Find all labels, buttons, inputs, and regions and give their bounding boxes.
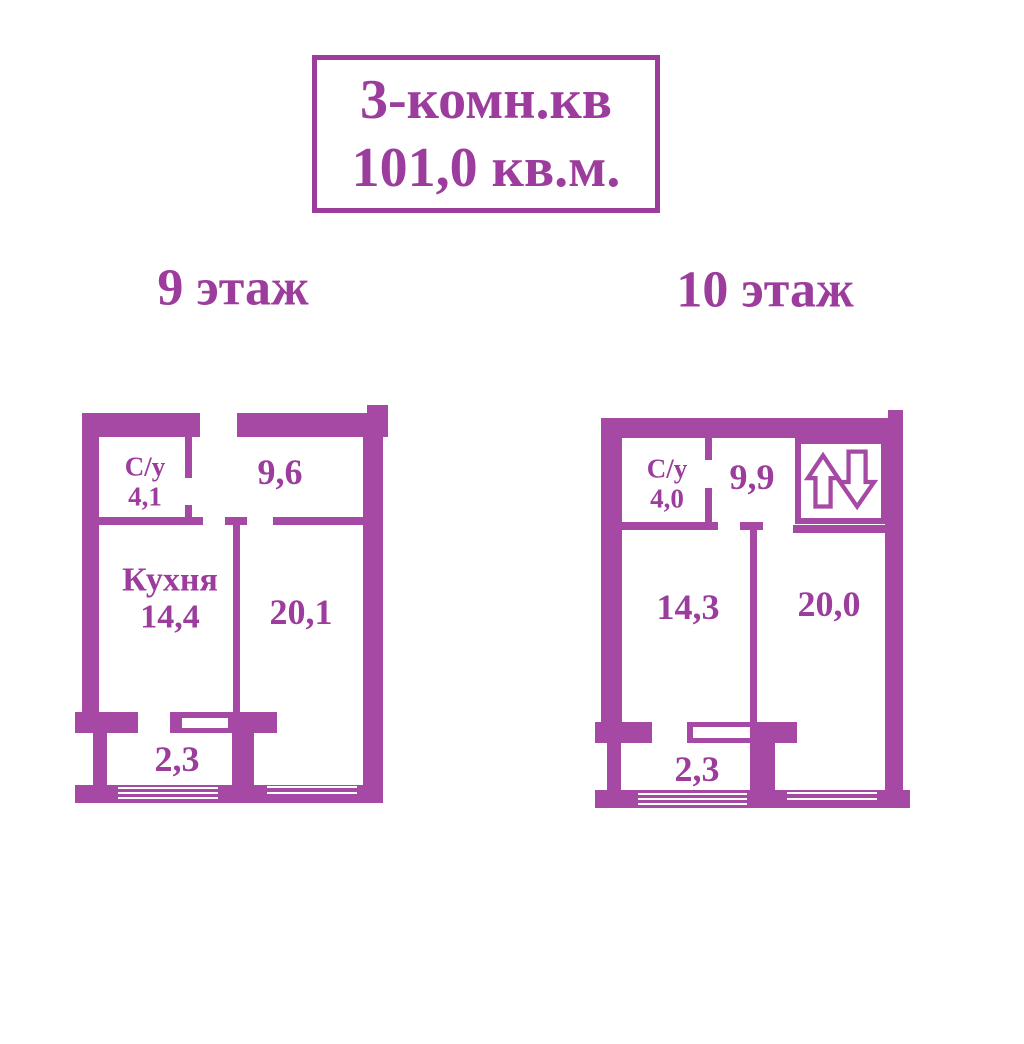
wall-top-right <box>237 413 383 437</box>
arrow-down-icon <box>840 452 874 507</box>
right-room-area: 20,0 <box>798 586 861 624</box>
balcony-area: 2,3 <box>155 741 200 779</box>
bathroom-name: С/у <box>125 452 166 482</box>
wall-mid-stub <box>740 522 763 530</box>
bathroom-label: С/у 4,1 <box>125 452 166 511</box>
wall-bathroom-right-upper <box>705 438 712 460</box>
stairwell-box <box>795 438 887 524</box>
kitchen-label: Кухня 14,4 <box>122 562 218 635</box>
apartment-type-title: 3-комн.кв <box>360 66 612 134</box>
wall-balcony-pier-left <box>75 712 138 733</box>
wall-partition-rooms <box>750 530 757 722</box>
room-window-marker <box>693 727 750 738</box>
wall-balcony-right <box>232 733 254 790</box>
bathroom-name: С/у <box>647 454 688 484</box>
wall-balcony-pier-left <box>595 722 652 743</box>
wall-bathroom-bottom <box>90 517 203 525</box>
hall-area: 9,6 <box>258 454 303 492</box>
wall-top-corner-notch <box>367 405 388 437</box>
wall-top-corner-notch <box>888 410 903 438</box>
wall-balcony-left <box>93 733 107 790</box>
wall-top-left <box>82 413 200 437</box>
wall-bathroom-right-upper <box>185 437 192 478</box>
wall-right <box>363 435 383 803</box>
bathroom-label: С/у 4,0 <box>647 454 688 513</box>
balcony-window-marker <box>118 787 218 799</box>
arrow-up-icon <box>808 455 838 506</box>
living-window-marker <box>787 792 877 800</box>
kitchen-window-marker <box>182 718 228 728</box>
wall-top <box>601 418 888 438</box>
bathroom-area: 4,1 <box>125 482 166 512</box>
living-area: 20,1 <box>270 594 333 632</box>
wall-hall-bottom <box>273 517 383 525</box>
kitchen-area: 14,4 <box>122 599 218 636</box>
wall-stairs-bottom <box>793 525 888 533</box>
hall-area: 9,9 <box>730 459 775 497</box>
wall-kitchen-window-block <box>170 712 277 733</box>
wall-mid-stub <box>225 517 247 525</box>
balcony-area: 2,3 <box>675 751 720 789</box>
floor-label-9: 9 этаж <box>157 259 308 318</box>
floor-label-10: 10 этаж <box>676 261 853 320</box>
apartment-area-title: 101,0 кв.м. <box>352 134 621 202</box>
kitchen-name: Кухня <box>122 562 218 599</box>
wall-partition-kitchen-room <box>233 525 240 717</box>
wall-left <box>82 413 99 717</box>
wall-right <box>885 435 903 807</box>
wall-bathroom-bottom <box>622 522 718 530</box>
living-window-marker <box>267 786 357 794</box>
wall-room-window-block <box>687 722 797 743</box>
floor-plan-9: С/у 4,1 9,6 Кухня 14,4 20,1 2,3 <box>75 405 385 803</box>
floor-plan-10: С/у 4,0 9,9 14,3 20,0 2,3 <box>595 410 910 810</box>
apartment-title-box: 3-комн.кв 101,0 кв.м. <box>312 55 660 213</box>
stairs-icon <box>803 446 879 516</box>
balcony-window-marker <box>638 793 747 805</box>
bathroom-area: 4,0 <box>647 484 688 514</box>
wall-left <box>601 418 622 722</box>
left-room-area: 14,3 <box>657 589 720 627</box>
